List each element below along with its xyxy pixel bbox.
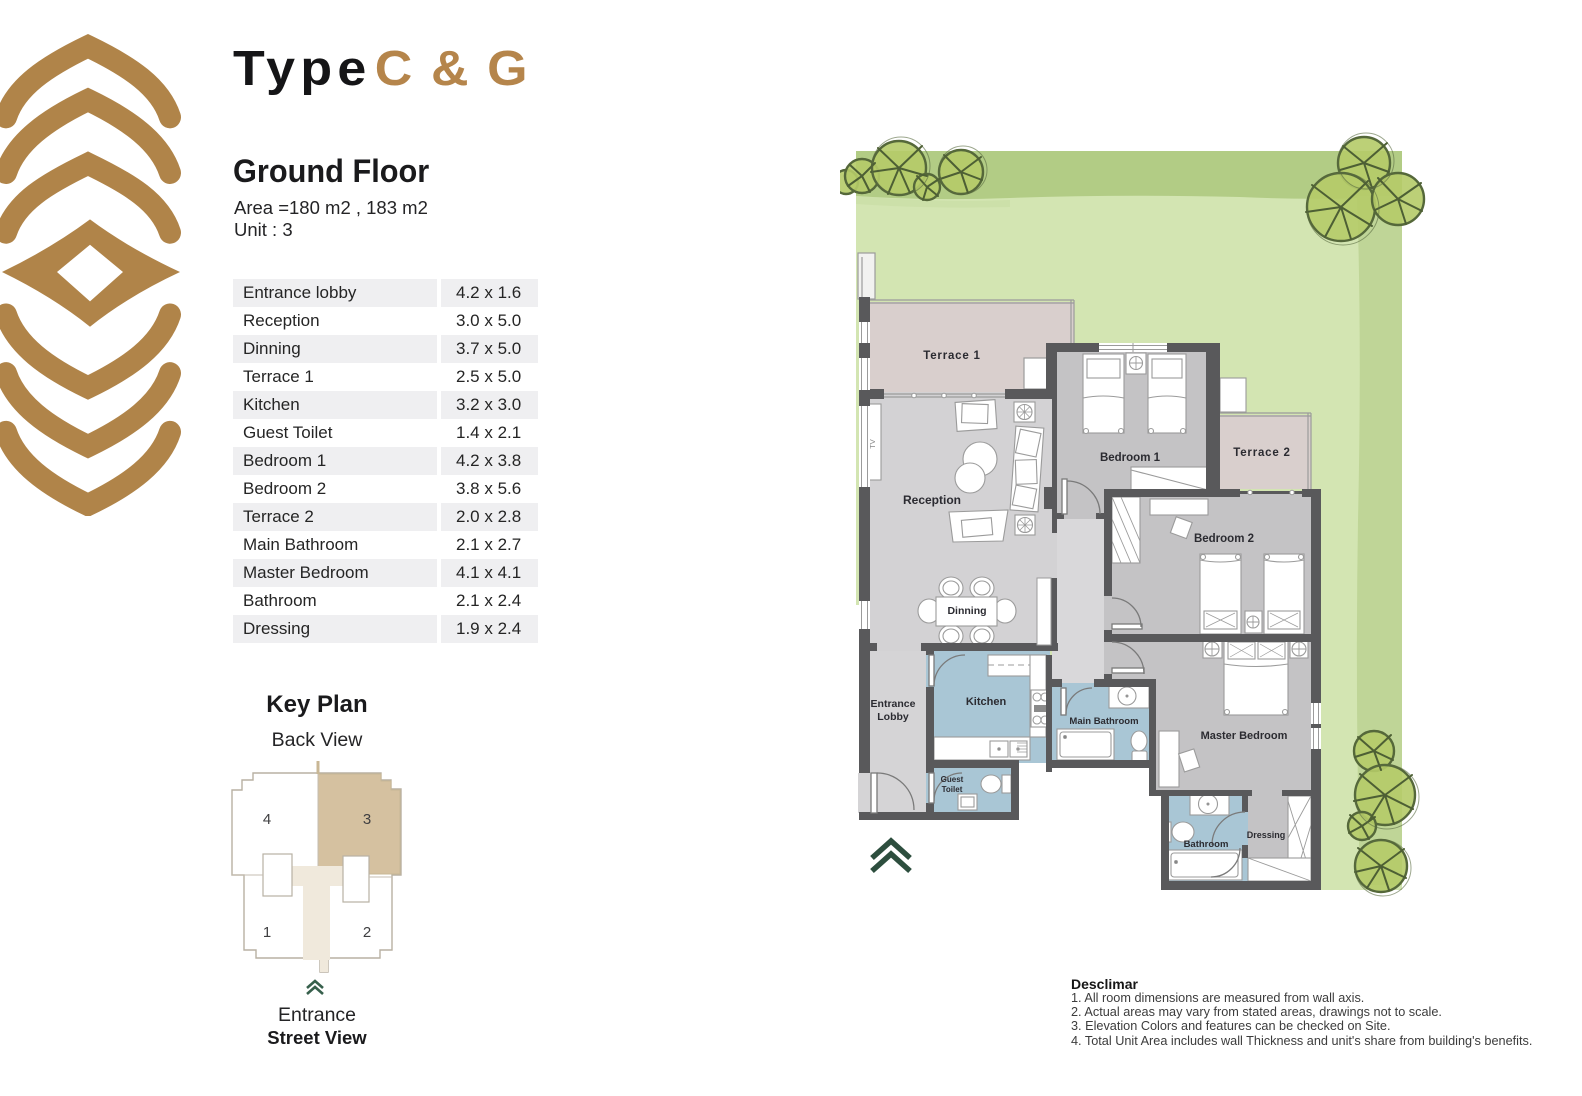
svg-text:Dinning: Dinning xyxy=(947,605,986,617)
svg-text:Terrace 1: Terrace 1 xyxy=(923,350,981,362)
svg-text:Toilet: Toilet xyxy=(942,785,963,794)
svg-text:Entrance: Entrance xyxy=(871,698,916,710)
svg-text:Main Bathroom: Main Bathroom xyxy=(1069,716,1138,727)
svg-text:4: 4 xyxy=(263,811,271,828)
svg-text:2: 2 xyxy=(363,924,371,941)
svg-text:1: 1 xyxy=(263,924,271,941)
svg-text:Guest: Guest xyxy=(941,775,964,784)
svg-text:Terrace 2: Terrace 2 xyxy=(1233,447,1291,459)
svg-text:Reception: Reception xyxy=(903,493,961,507)
svg-text:Bedroom 2: Bedroom 2 xyxy=(1194,533,1254,545)
svg-text:Dressing: Dressing xyxy=(1247,830,1286,840)
svg-text:3: 3 xyxy=(363,811,371,828)
svg-text:Bedroom 1: Bedroom 1 xyxy=(1100,452,1161,464)
svg-text:Kitchen: Kitchen xyxy=(966,696,1007,708)
svg-text:Lobby: Lobby xyxy=(877,711,909,723)
svg-text:Bathroom: Bathroom xyxy=(1184,839,1229,850)
svg-text:Master Bedroom: Master Bedroom xyxy=(1201,730,1288,742)
